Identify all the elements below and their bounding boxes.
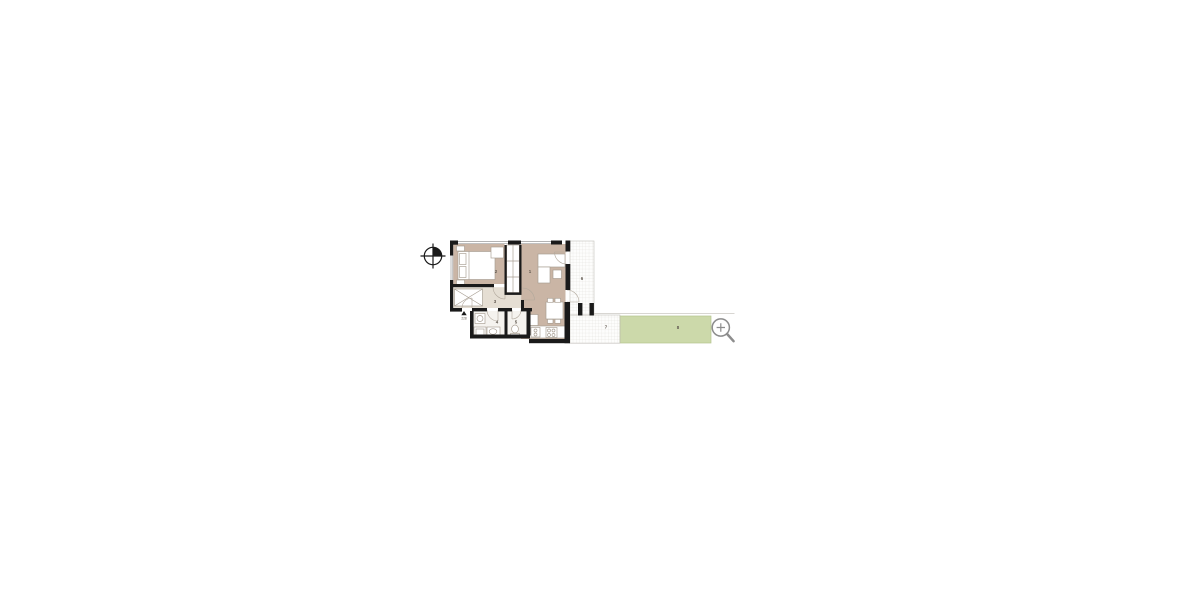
living-window [521,242,551,244]
page-canvas: 228 1 2 3 4 5 6 7 8 [0,0,1200,600]
magnifier-handle[interactable] [727,334,734,341]
wall [529,339,570,343]
wall [590,303,594,316]
wall [508,241,521,245]
bed-pillow [460,254,467,265]
washing-machine-drum [477,316,483,322]
terrace-tiles [570,315,620,343]
wall [566,241,571,252]
wall [470,335,530,339]
floor-plan: 228 1 2 3 4 5 6 7 8 [0,0,1200,600]
stove-burner [548,329,551,332]
wall [505,293,522,295]
wall [505,245,507,294]
wall [527,311,531,336]
wall [450,241,453,256]
desk [491,247,504,258]
entrance-marker-icon [461,311,466,315]
sink-bowl [534,333,537,336]
wall [450,280,453,312]
wall [565,302,571,343]
toilet [512,325,519,333]
coffee-table [553,270,562,279]
zoom-control[interactable] [712,319,733,341]
bed-pillow [460,267,467,278]
sofa [538,254,565,267]
compass-north-sector [433,247,442,256]
dining-chair [548,319,554,323]
dining-table [546,302,563,319]
dining-chair [548,298,554,302]
wall [519,245,521,294]
wall [472,308,487,311]
wall [566,264,571,290]
nightstand [457,246,465,251]
entrance-number: 228 [461,317,467,321]
wall [498,308,512,311]
wall [453,284,494,287]
bedroom-side-window [451,255,453,280]
wall [521,308,532,311]
wall [450,308,462,312]
wall [470,311,474,338]
dining-chair [555,319,561,323]
wall [578,303,582,316]
dining-chair [555,298,561,302]
stove-burner [548,334,551,337]
bedroom-window [458,242,508,244]
sink-bowl [534,329,537,332]
compass-icon [421,244,446,269]
sofa-chaise [538,267,550,283]
wall [521,300,524,308]
garden-area [620,316,711,343]
wall [505,311,508,335]
stove-burner [552,329,555,332]
wall [551,241,562,245]
stove-burner [552,334,555,337]
washbasin [489,329,497,335]
